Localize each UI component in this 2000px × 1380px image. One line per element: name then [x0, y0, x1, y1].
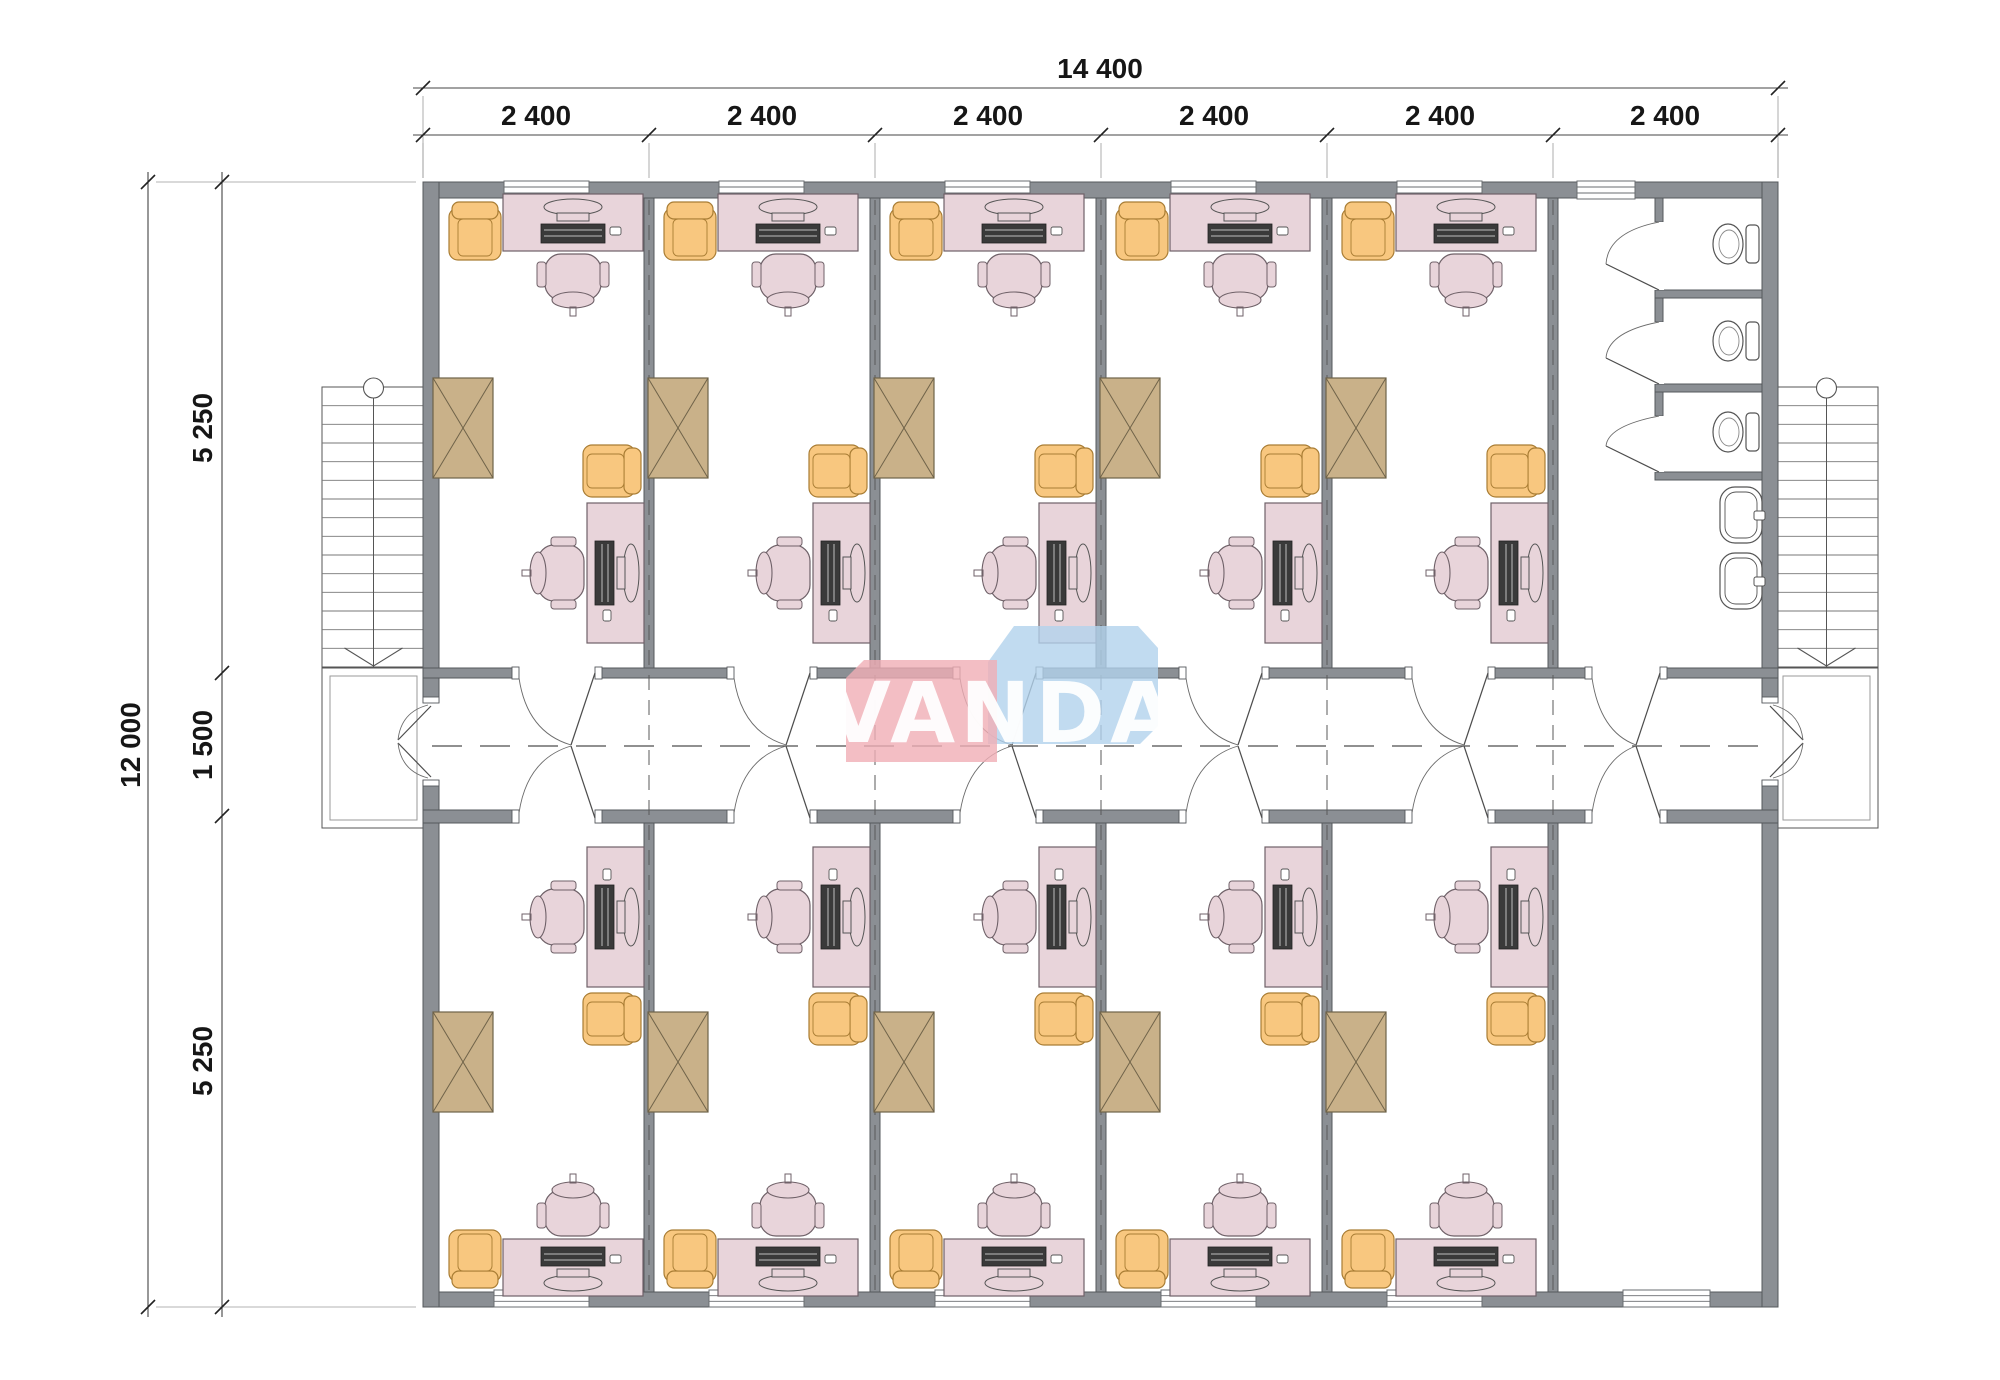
grid-bubble: [1817, 378, 1837, 398]
door-swing-arc: [1606, 222, 1659, 264]
door-leaf: [1238, 673, 1262, 745]
sink-icon: [1720, 487, 1765, 543]
door-swing-arc: [734, 746, 786, 813]
entry-porch: [1775, 668, 1878, 828]
wall: [1655, 392, 1663, 416]
door-swing-arc: [519, 746, 571, 813]
door-swing-arc: [1186, 678, 1238, 745]
door-leaf: [571, 746, 595, 818]
door-jamb: [727, 810, 734, 823]
door-swing-arc: [734, 678, 786, 745]
armchair: [1261, 993, 1319, 1045]
toilet-icon: [1713, 321, 1759, 361]
armchair: [1116, 1230, 1168, 1288]
dim-bay: 2 400: [1179, 100, 1249, 131]
armchair: [809, 445, 867, 497]
office-desk-with-computer: [974, 847, 1096, 987]
bottom-rooms-mirror: [433, 847, 1548, 1296]
armchair: [1487, 445, 1545, 497]
stall-door-opening: [1654, 416, 1664, 472]
armchair: [583, 445, 641, 497]
door-leaf: [1464, 673, 1488, 745]
office-desk-with-computer: [1200, 503, 1322, 643]
door-leaf: [1606, 264, 1659, 290]
door-jamb: [423, 697, 439, 703]
door-leaf: [571, 673, 595, 745]
door-opening: [1412, 808, 1488, 825]
door-jamb: [1262, 667, 1269, 679]
door-opening: [519, 666, 595, 680]
office-desk-with-computer: [1170, 1174, 1310, 1296]
crossed-table: [1100, 378, 1160, 478]
armchair: [1487, 993, 1545, 1045]
door-leaf: [1606, 358, 1659, 384]
door-jamb: [810, 667, 817, 679]
crossed-table: [433, 378, 493, 478]
door-leaf: [1238, 746, 1262, 818]
door-jamb: [595, 810, 602, 823]
office-desk-with-computer: [503, 1174, 643, 1296]
stall-door-opening: [1654, 222, 1664, 290]
sink-icon: [1720, 553, 1765, 609]
door-opening: [1592, 666, 1660, 680]
door-opening: [734, 666, 810, 680]
toilet-icon: [1713, 412, 1759, 452]
door-jamb: [810, 810, 817, 823]
office-desk-with-computer: [718, 1174, 858, 1296]
door-opening: [960, 808, 1036, 825]
window: [1623, 1290, 1710, 1307]
bathroom-fixtures: [1713, 224, 1765, 609]
office-desk-with-computer: [522, 847, 644, 987]
crossed-table: [874, 1012, 934, 1112]
office-desk-with-computer: [503, 194, 643, 316]
entrance-opening: [1761, 703, 1779, 780]
armchair: [1261, 445, 1319, 497]
office-desk-with-computer: [522, 503, 644, 643]
door-swing-arc: [1592, 746, 1636, 813]
office-desk-with-computer: [1170, 194, 1310, 316]
armchair: [664, 202, 716, 260]
wall: [1655, 290, 1762, 298]
door-opening: [519, 808, 595, 825]
floorplan-canvas: VANDA 14 400 2 400 2 400 2 400 2 400 2 4…: [0, 0, 2000, 1380]
office-desk-with-computer: [1396, 1174, 1536, 1296]
office-desk-with-computer: [718, 194, 858, 316]
dim-bay: 2 400: [501, 100, 571, 131]
office-desk-with-computer: [944, 1174, 1084, 1296]
door-opening: [734, 808, 810, 825]
toilet-icon: [1713, 224, 1759, 264]
door-leaf: [786, 746, 810, 818]
door-swing-arc: [1606, 416, 1659, 446]
office-desk-with-computer: [748, 503, 870, 643]
armchair: [449, 1230, 501, 1288]
armchair: [449, 202, 501, 260]
door-swing-arc: [1412, 678, 1464, 745]
armchair: [890, 1230, 942, 1288]
dim-row: 1 500: [187, 710, 218, 780]
dim-row: 5 250: [187, 393, 218, 463]
armchair: [1035, 993, 1093, 1045]
window: [1577, 181, 1635, 199]
armchair: [1035, 445, 1093, 497]
door-jamb: [1762, 697, 1778, 703]
armchair: [1342, 1230, 1394, 1288]
crossed-table: [433, 1012, 493, 1112]
door-opening: [1592, 808, 1660, 825]
dim-bay: 2 400: [1630, 100, 1700, 131]
door-swing-arc: [1592, 678, 1636, 745]
door-swing-arc: [1606, 322, 1659, 358]
door-jamb: [1262, 810, 1269, 823]
door-jamb: [1179, 810, 1186, 823]
door-leaf: [1636, 673, 1660, 745]
stall-door-opening: [1654, 322, 1664, 384]
armchair: [890, 202, 942, 260]
door-jamb: [512, 667, 519, 679]
door-swing-arc: [1186, 746, 1238, 813]
door-jamb: [953, 810, 960, 823]
wall: [1655, 384, 1762, 392]
floorplan-drawing: VANDA 14 400 2 400 2 400 2 400 2 400 2 4…: [0, 0, 2000, 1380]
door-jamb: [1660, 667, 1667, 679]
crossed-table: [1326, 378, 1386, 478]
armchair: [583, 993, 641, 1045]
door-jamb: [1585, 810, 1592, 823]
entrance-opening: [422, 703, 440, 780]
wall: [1655, 472, 1762, 480]
office-desk-with-computer: [1426, 503, 1548, 643]
door-jamb: [1036, 810, 1043, 823]
crossed-table: [648, 378, 708, 478]
door-leaf: [1636, 746, 1660, 818]
door-jamb: [1488, 810, 1495, 823]
door-swing-arc: [1412, 746, 1464, 813]
dim-total-height: 12 000: [115, 702, 146, 788]
crossed-table: [1100, 1012, 1160, 1112]
door-leaf: [1464, 746, 1488, 818]
door-jamb: [423, 780, 439, 786]
door-leaf: [786, 673, 810, 745]
office-desk-with-computer: [1396, 194, 1536, 316]
crossed-table: [874, 378, 934, 478]
door-jamb: [727, 667, 734, 679]
entry-porch: [322, 668, 425, 828]
door-jamb: [1488, 667, 1495, 679]
door-jamb: [1762, 780, 1778, 786]
door-opening: [1186, 808, 1262, 825]
logo-text: VANDA: [826, 664, 1180, 762]
door-opening: [1412, 666, 1488, 680]
door-jamb: [1585, 667, 1592, 679]
dim-total-width: 14 400: [1057, 53, 1143, 84]
armchair: [1116, 202, 1168, 260]
wall: [1655, 198, 1663, 222]
office-desk-with-computer: [1426, 847, 1548, 987]
door-jamb: [512, 810, 519, 823]
armchair: [809, 993, 867, 1045]
office-desk-with-computer: [1200, 847, 1322, 987]
dim-bay: 2 400: [727, 100, 797, 131]
door-jamb: [1405, 667, 1412, 679]
dim-row: 5 250: [187, 1026, 218, 1096]
grid-bubble: [364, 378, 384, 398]
office-desk-with-computer: [974, 503, 1096, 643]
armchair: [1342, 202, 1394, 260]
door-opening: [1186, 666, 1262, 680]
door-leaf: [1606, 446, 1659, 472]
crossed-table: [1326, 1012, 1386, 1112]
wall: [1655, 298, 1663, 322]
door-jamb: [1660, 810, 1667, 823]
armchair: [664, 1230, 716, 1288]
dim-bay: 2 400: [953, 100, 1023, 131]
office-desk-with-computer: [748, 847, 870, 987]
door-jamb: [595, 667, 602, 679]
door-jamb: [1405, 810, 1412, 823]
door-swing-arc: [519, 678, 571, 745]
crossed-table: [648, 1012, 708, 1112]
dim-bay: 2 400: [1405, 100, 1475, 131]
office-desk-with-computer: [944, 194, 1084, 316]
